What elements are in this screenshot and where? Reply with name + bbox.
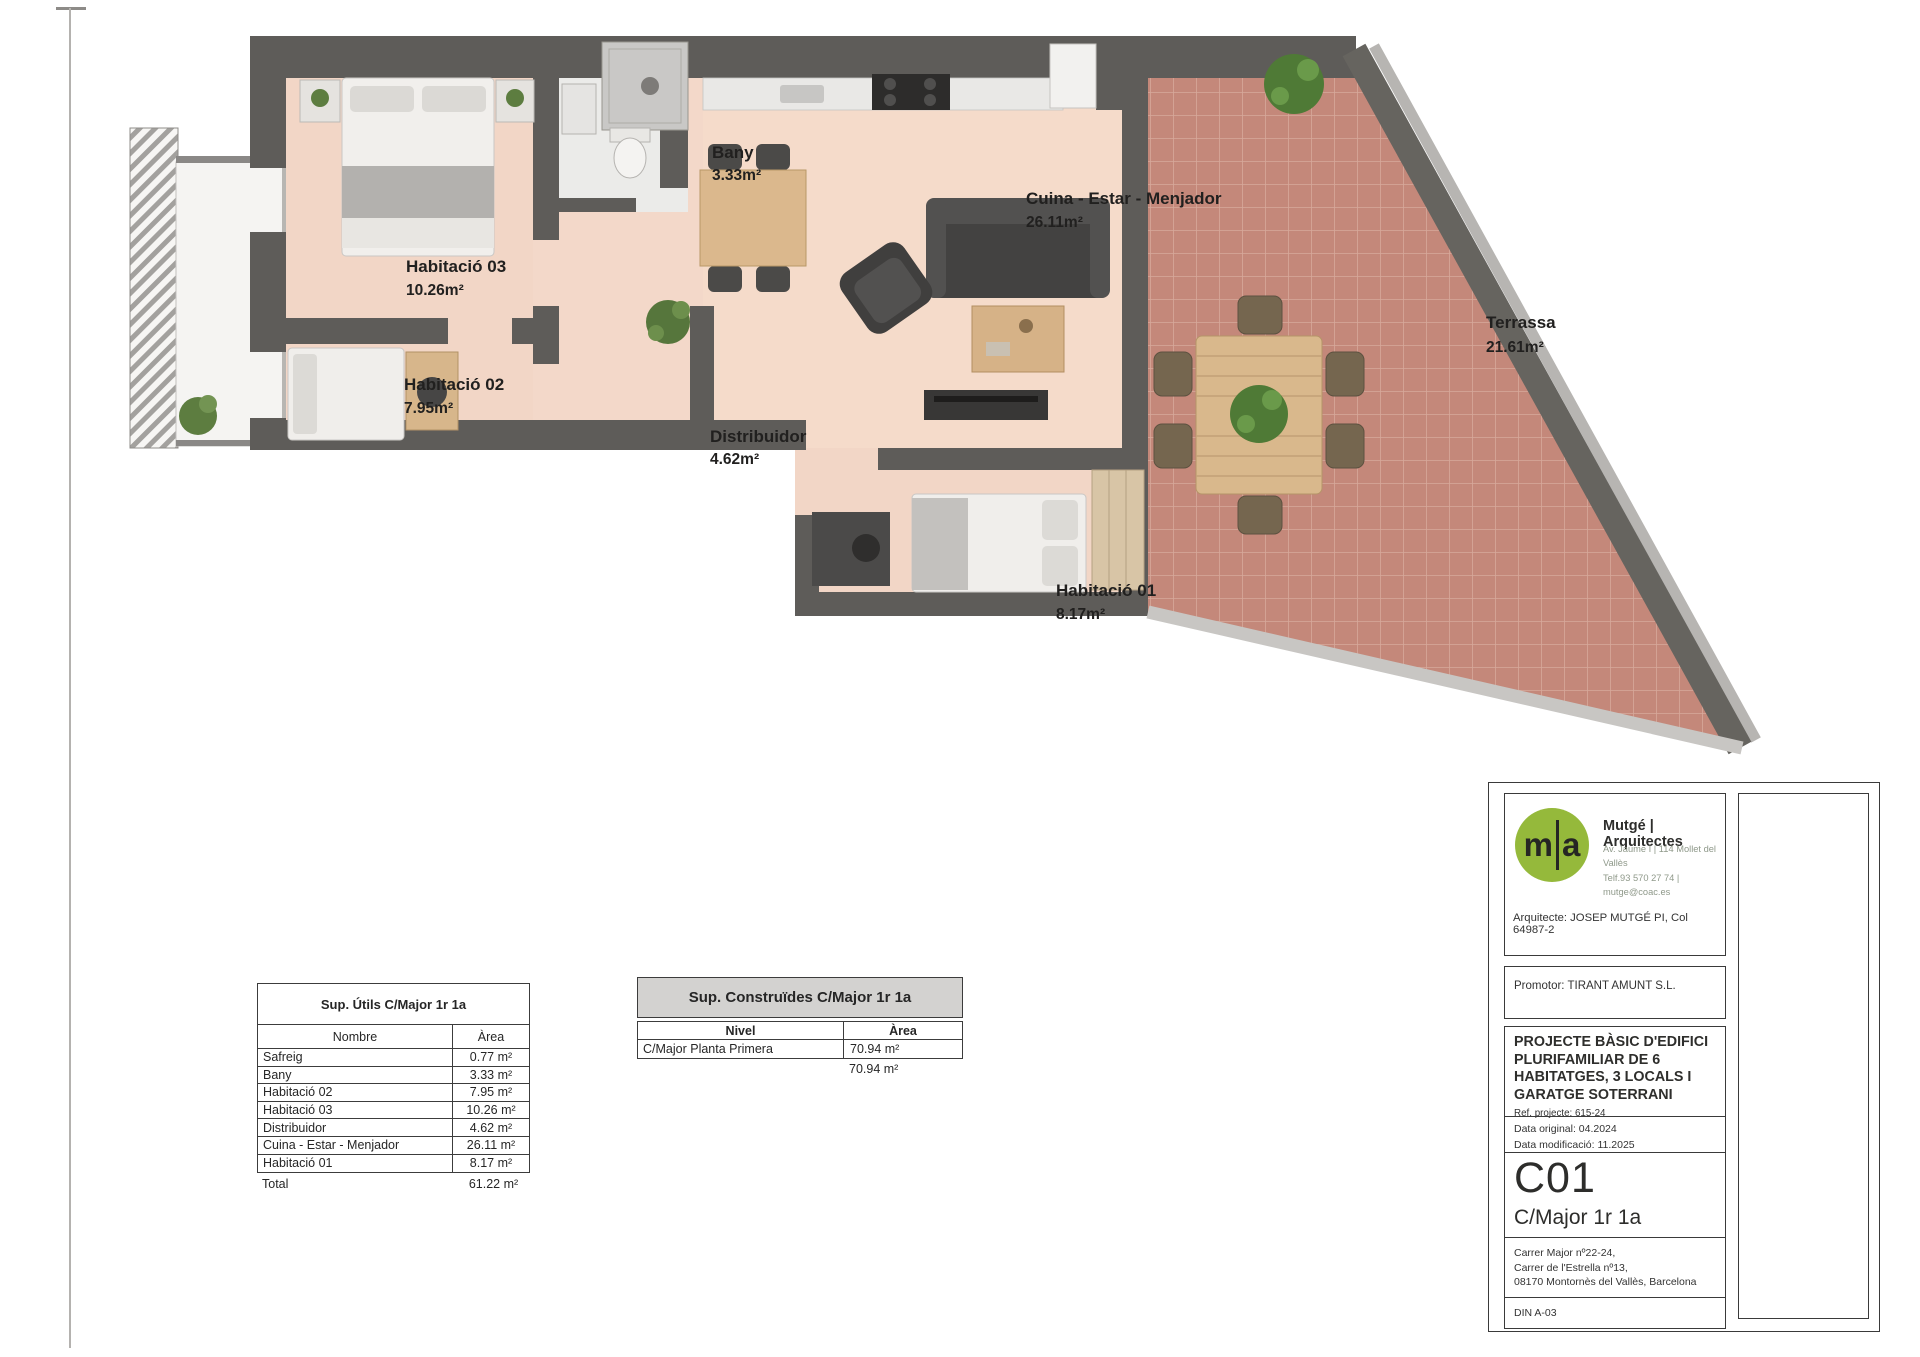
- sheet-section: C01 C/Major 1r 1a: [1505, 1153, 1725, 1238]
- distribuidor-label: Distribuidor: [710, 427, 807, 446]
- habitacio01-label: Habitació 01: [1056, 581, 1156, 600]
- habitacio02-label: Habitació 02: [404, 375, 504, 394]
- logo-bar: [1556, 820, 1559, 870]
- dates-section: Data original: 04.2024 Data modificació:…: [1505, 1117, 1725, 1153]
- col-header-nombre: Nombre: [258, 1025, 453, 1048]
- toilet: [614, 138, 646, 178]
- table-row: Distribuidor 4.62 m²: [258, 1119, 529, 1137]
- paper-size: DIN A-03: [1505, 1298, 1725, 1329]
- project-section: PROJECTE BÀSIC D'EDIFICI PLURIFAMILIAR D…: [1504, 1026, 1726, 1329]
- fridge: [1050, 44, 1096, 108]
- terrassa-area: 21.61m²: [1486, 339, 1544, 356]
- habitacio01-area: 8.17m²: [1056, 606, 1105, 623]
- promoter-section: Promotor: TIRANT AMUNT S.L.: [1504, 966, 1726, 1019]
- habitacio03-label: Habitació 03: [406, 257, 506, 276]
- bany-area: 3.33m²: [712, 167, 761, 184]
- total-label: Total: [257, 1174, 457, 1193]
- sheet-name: C/Major 1r 1a: [1514, 1206, 1716, 1230]
- balcony-door: [282, 168, 286, 232]
- hall-plant: [646, 300, 690, 344]
- date-original: Data original: 04.2024: [1514, 1121, 1716, 1137]
- bany-label: Bany: [712, 143, 754, 162]
- project-title: PROJECTE BÀSIC D'EDIFICI PLURIFAMILIAR D…: [1514, 1034, 1716, 1105]
- table-row: Habitació 02 7.95 m²: [258, 1084, 529, 1102]
- scanned-floorplan-sheet: Habitació 03 10.26m² Habitació 02 7.95m²…: [0, 0, 1920, 1357]
- habitacio03-area: 10.26m²: [406, 282, 464, 299]
- title-block-empty-panel: [1738, 793, 1869, 1319]
- sink: [780, 85, 824, 103]
- dining-table: [700, 170, 806, 266]
- col-header-area: Àrea: [844, 1022, 962, 1039]
- date-modified: Data modificació: 11.2025: [1514, 1137, 1716, 1153]
- site-address: Carrer Major nº22-24, Carrer de l'Estrel…: [1505, 1238, 1725, 1298]
- stove: [872, 74, 950, 110]
- sup-utils-total-row: Total 61.22 m²: [257, 1174, 530, 1193]
- table-row: Bany 3.33 m²: [258, 1067, 529, 1085]
- title-block: ma Mutgé | Arquitectes Av. Jaume I | 114…: [1488, 782, 1880, 1332]
- sup-utils-table: Sup. Útils C/Major 1r 1a Nombre Àrea Saf…: [257, 983, 530, 1193]
- washbasin: [562, 84, 596, 134]
- table-row: Safreig 0.77 m²: [258, 1049, 529, 1067]
- sup-construides-total: 70.94 m²: [849, 1059, 963, 1079]
- table-row: Cuina - Estar - Menjador 26.11 m²: [258, 1137, 529, 1155]
- total-value: 61.22 m²: [457, 1174, 530, 1193]
- balcony-door: [282, 352, 286, 418]
- balcony-hatch: [130, 128, 178, 448]
- cuina-label: Cuina - Estar - Menjador: [1026, 189, 1222, 208]
- cuina-area: 26.11m²: [1026, 214, 1083, 231]
- floor-plan-svg: Habitació 03 10.26m² Habitació 02 7.95m²…: [0, 0, 1920, 780]
- tv-bench: [924, 390, 1048, 420]
- table-row: Habitació 01 8.17 m²: [258, 1155, 529, 1173]
- habitacio02-area: 7.95m²: [404, 400, 453, 417]
- sup-construides-table: Sup. Construïdes C/Major 1r 1a Nivel Àre…: [637, 977, 963, 1079]
- sheet-code: C01: [1514, 1154, 1716, 1203]
- sideboard: [972, 306, 1064, 372]
- table-row: C/Major Planta Primera 70.94 m²: [638, 1040, 962, 1058]
- habitacio02-furniture: [288, 348, 458, 440]
- wardrobe: [1092, 470, 1144, 590]
- architect-name: Arquitecte: JOSEP MUTGÉ PI, Col 64987-2: [1513, 912, 1725, 936]
- firm-contact: Av. Jaume I | 114 Mollet del Vallès Telf…: [1603, 842, 1725, 900]
- sup-construides-title: Sup. Construïdes C/Major 1r 1a: [637, 977, 963, 1018]
- table-row: Habitació 03 10.26 m²: [258, 1102, 529, 1120]
- col-header-area: Àrea: [453, 1025, 529, 1048]
- chair: [852, 534, 880, 562]
- architect-section: ma Mutgé | Arquitectes Av. Jaume I | 114…: [1504, 793, 1726, 956]
- distribuidor-area: 4.62m²: [710, 451, 759, 468]
- mutge-logo: ma: [1515, 808, 1589, 882]
- terrassa-label: Terrassa: [1486, 313, 1556, 332]
- sup-utils-title: Sup. Útils C/Major 1r 1a: [258, 984, 529, 1025]
- col-header-nivel: Nivel: [638, 1022, 844, 1039]
